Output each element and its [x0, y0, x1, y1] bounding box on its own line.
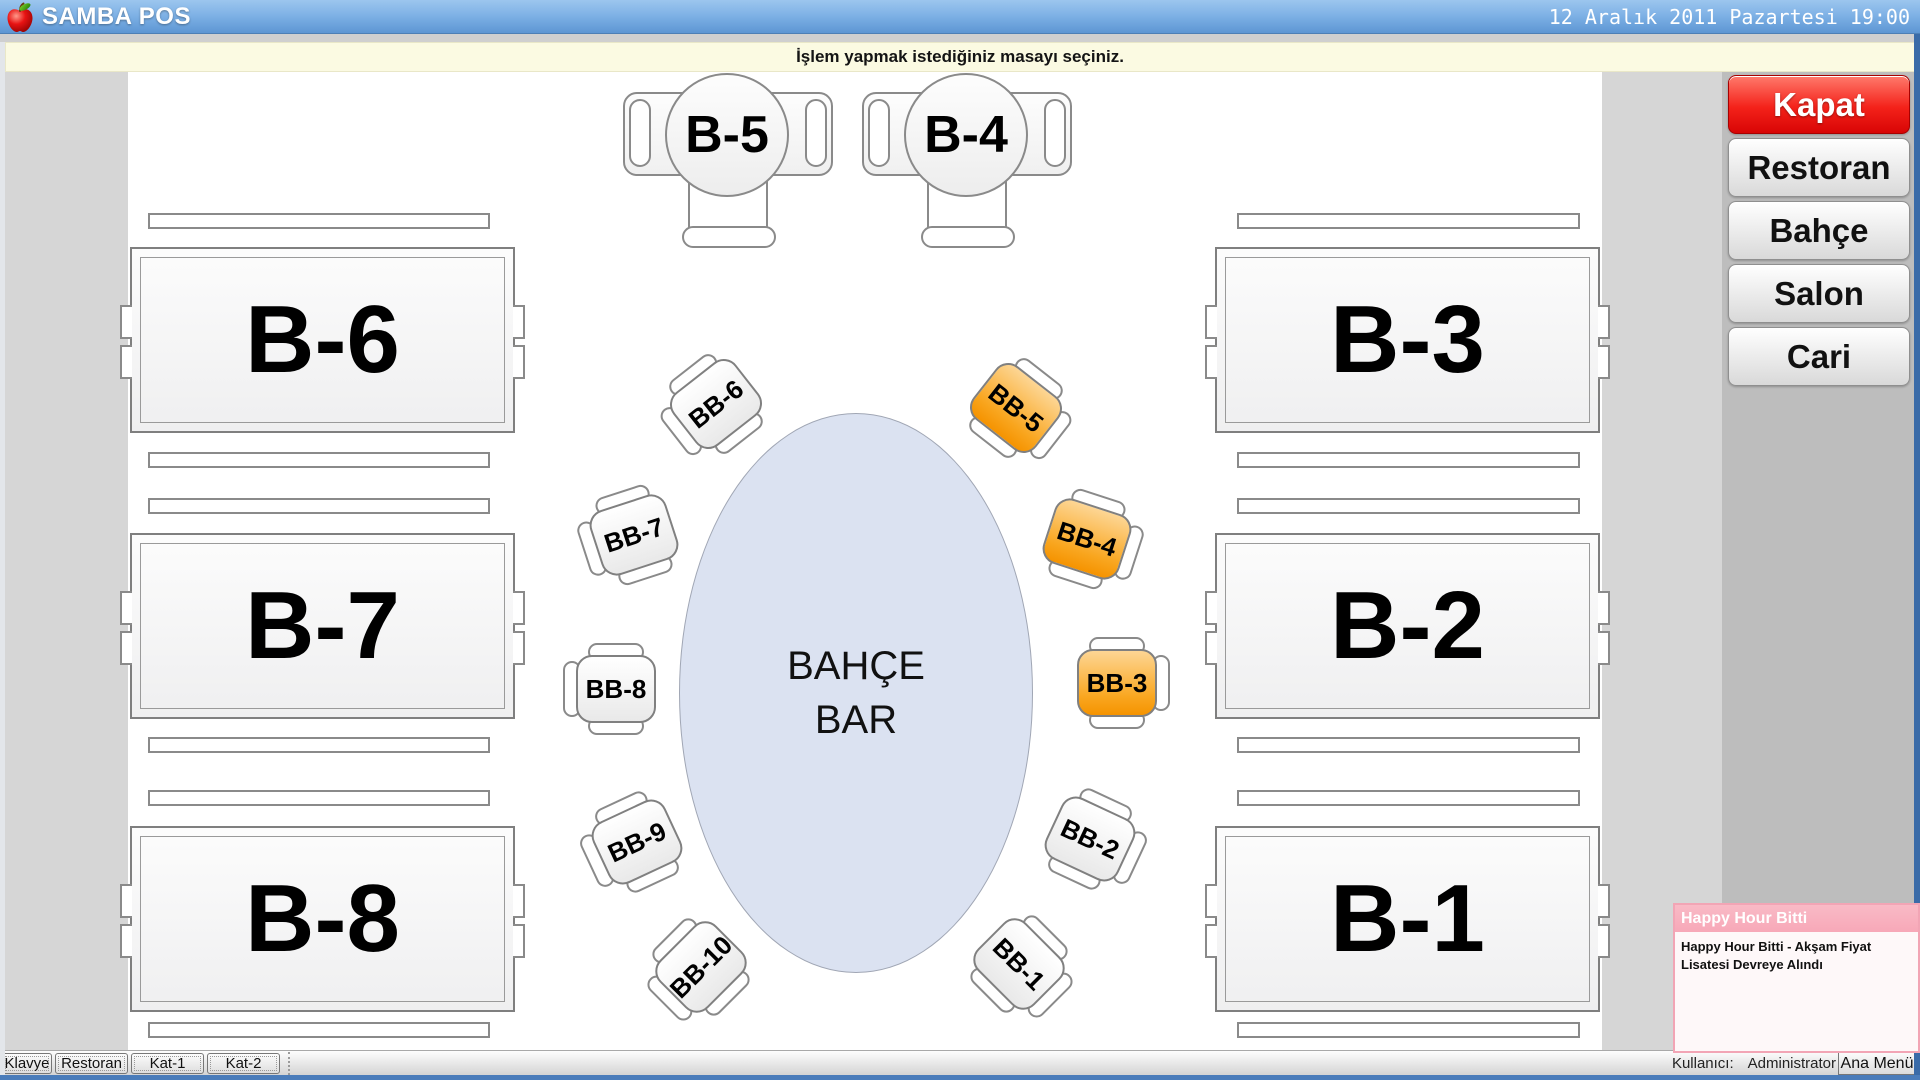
- bar-chair-BB-3[interactable]: BB-3: [1077, 649, 1157, 717]
- chair-label: BB-4: [1053, 515, 1120, 563]
- bench-seat: [148, 213, 490, 229]
- bar-label-line1: BAHÇE: [787, 639, 925, 693]
- notification-text: Happy Hour Bitti - Akşam Fiyat Lisatesi …: [1681, 939, 1871, 972]
- table-label: B-7: [245, 578, 400, 674]
- table-B-2[interactable]: B-2: [1215, 533, 1600, 719]
- table-B-4[interactable]: B-4: [862, 92, 1072, 252]
- notification-body: Happy Hour Bitti - Akşam Fiyat Lisatesi …: [1675, 932, 1918, 980]
- salon-button[interactable]: Salon: [1728, 264, 1910, 323]
- bench-seat: [148, 1022, 490, 1038]
- bahce-button[interactable]: Bahçe: [1728, 201, 1910, 260]
- notification-popup[interactable]: Happy Hour Bitti Happy Hour Bitti - Akşa…: [1673, 903, 1920, 1053]
- table-label: B-1: [1330, 871, 1485, 967]
- restoran-tab-button[interactable]: Restoran: [55, 1053, 128, 1074]
- round-table-top: B-5: [665, 73, 789, 197]
- table-B-1[interactable]: B-1: [1215, 826, 1600, 1012]
- bar-chair-BB-8[interactable]: BB-8: [576, 655, 656, 723]
- user-name: Administrator: [1748, 1055, 1836, 1072]
- table-label: B-8: [245, 871, 400, 967]
- bench-seat: [1237, 498, 1580, 514]
- table-B-7[interactable]: B-7: [130, 533, 515, 719]
- toolbar-separator: [288, 1052, 290, 1075]
- table-B-6[interactable]: B-6: [130, 247, 515, 433]
- app-window: SAMBA POS 12 Aralık 2011 Pazartesi 19:00…: [0, 0, 1920, 1080]
- bench-seat: [148, 498, 490, 514]
- chair-label: BB-2: [1056, 812, 1124, 866]
- table-B-3[interactable]: B-3: [1215, 247, 1600, 433]
- table-label: B-3: [1330, 292, 1485, 388]
- chair-label: BB-3: [1087, 668, 1148, 699]
- bench-seat: [148, 790, 490, 806]
- table-B-5[interactable]: B-5: [623, 92, 833, 252]
- restoran-button[interactable]: Restoran: [1728, 138, 1910, 197]
- user-info: Kullanıcı: Administrator: [1672, 1051, 1836, 1076]
- title-bar: SAMBA POS 12 Aralık 2011 Pazartesi 19:00: [0, 0, 1920, 34]
- cari-button[interactable]: Cari: [1728, 327, 1910, 386]
- app-title: SAMBA POS: [42, 3, 191, 31]
- chair-label: BB-8: [586, 674, 647, 705]
- chair-back: [921, 226, 1015, 248]
- chair-label: BB-1: [987, 932, 1052, 997]
- bar-label-line2: BAR: [815, 693, 897, 747]
- message-bar: İşlem yapmak istediğiniz masayı seçiniz.: [5, 42, 1915, 72]
- klavye-button[interactable]: Klavye: [2, 1053, 52, 1074]
- table-label: B-2: [1330, 578, 1485, 674]
- bench-seat: [1237, 452, 1580, 468]
- kat-1-button[interactable]: Kat-1: [131, 1053, 204, 1074]
- sofa-armrest: [629, 99, 651, 167]
- bench-seat: [148, 737, 490, 753]
- bottom-bar: Klavye Restoran Kat-1 Kat-2 Kullanıcı: A…: [0, 1050, 1920, 1075]
- sofa-armrest: [1044, 99, 1066, 167]
- window-border-bottom: [0, 1075, 1920, 1080]
- chrome-strip: [0, 34, 1920, 42]
- chair-label: BB-9: [603, 815, 671, 869]
- table-B-8[interactable]: B-8: [130, 826, 515, 1012]
- table-label: B-4: [924, 105, 1008, 165]
- bench-seat: [1237, 790, 1580, 806]
- chair-label: BB-7: [600, 511, 667, 559]
- notification-title: Happy Hour Bitti: [1681, 910, 1807, 928]
- user-label: Kullanıcı:: [1672, 1055, 1734, 1072]
- table-label: B-5: [685, 105, 769, 165]
- notification-header: Happy Hour Bitti: [1675, 905, 1918, 932]
- bench-seat: [1237, 213, 1580, 229]
- chair-label: BB-6: [683, 373, 750, 435]
- kat-2-button[interactable]: Kat-2: [207, 1053, 280, 1074]
- bench-seat: [1237, 1022, 1580, 1038]
- chair-label: BB-5: [983, 377, 1050, 439]
- bench-seat: [148, 452, 490, 468]
- bahce-bar-counter[interactable]: BAHÇE BAR: [679, 413, 1033, 973]
- sofa-armrest: [805, 99, 827, 167]
- message-text: İşlem yapmak istediğiniz masayı seçiniz.: [796, 47, 1124, 67]
- datetime-display: 12 Aralık 2011 Pazartesi 19:00: [1549, 5, 1910, 29]
- sofa-armrest: [868, 99, 890, 167]
- bench-seat: [1237, 737, 1580, 753]
- round-table-top: B-4: [904, 73, 1028, 197]
- kapat-button[interactable]: Kapat: [1728, 75, 1910, 134]
- apple-logo-icon: [6, 2, 34, 38]
- ana-menu-button[interactable]: Ana Menü: [1838, 1052, 1916, 1075]
- chair-back: [682, 226, 776, 248]
- table-label: B-6: [245, 292, 400, 388]
- window-border-left: [0, 42, 5, 1080]
